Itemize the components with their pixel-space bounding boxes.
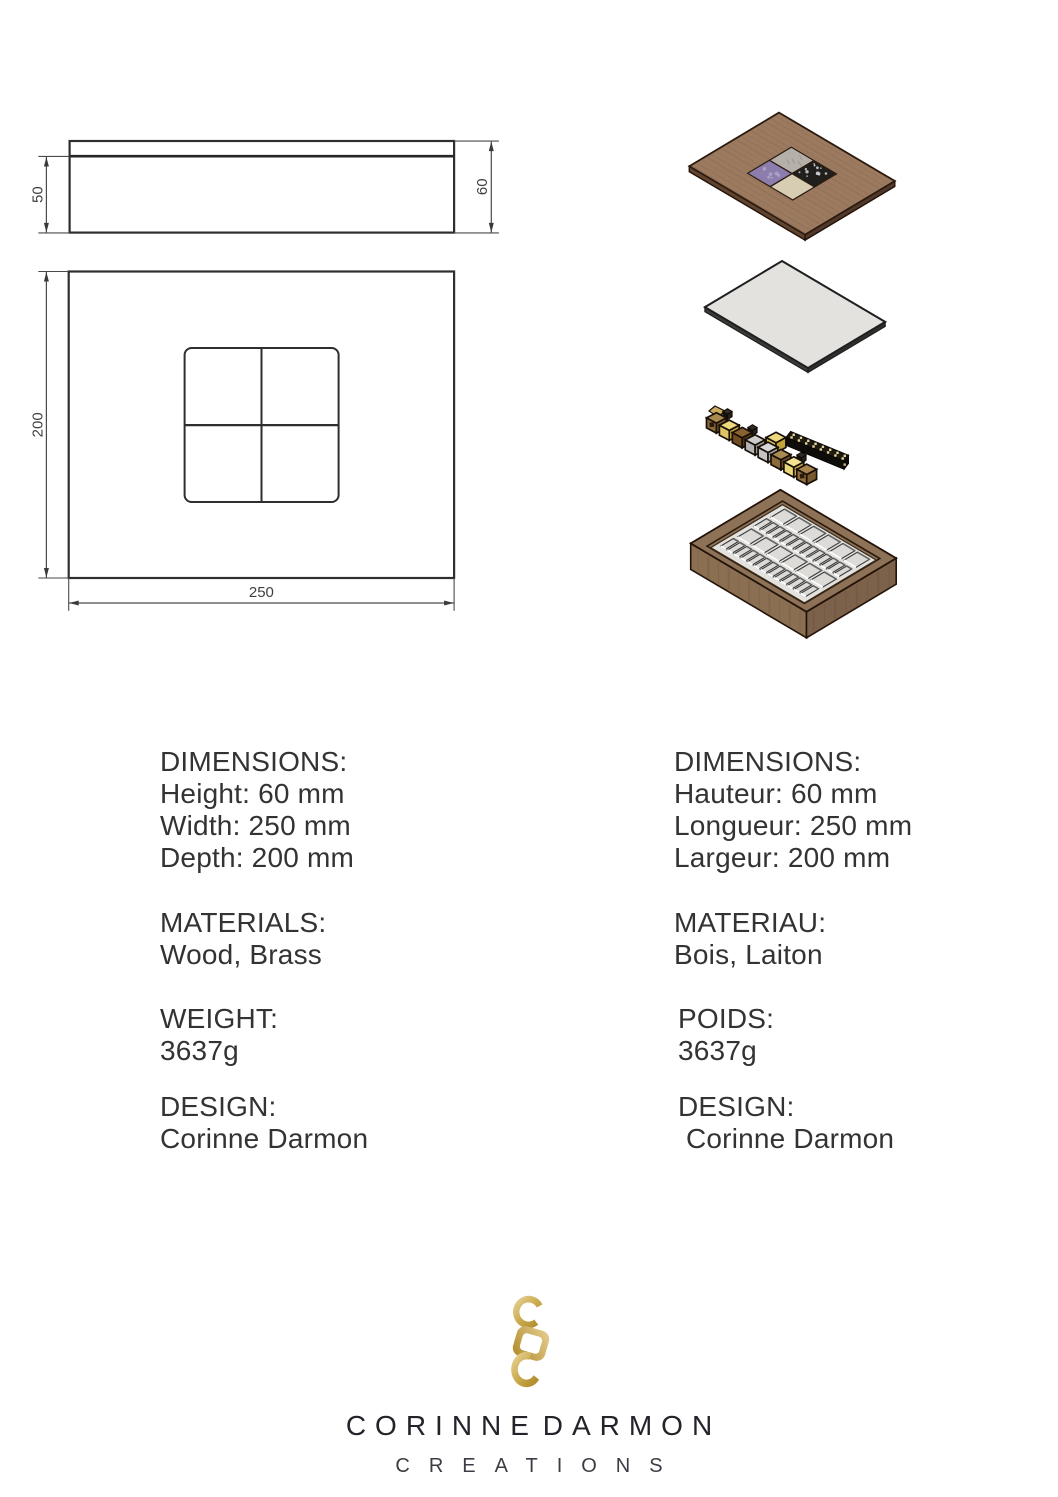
svg-text:60: 60	[474, 178, 491, 195]
svg-text:200: 200	[30, 412, 47, 437]
svg-text:250: 250	[249, 584, 274, 601]
svg-text:50: 50	[30, 186, 47, 203]
